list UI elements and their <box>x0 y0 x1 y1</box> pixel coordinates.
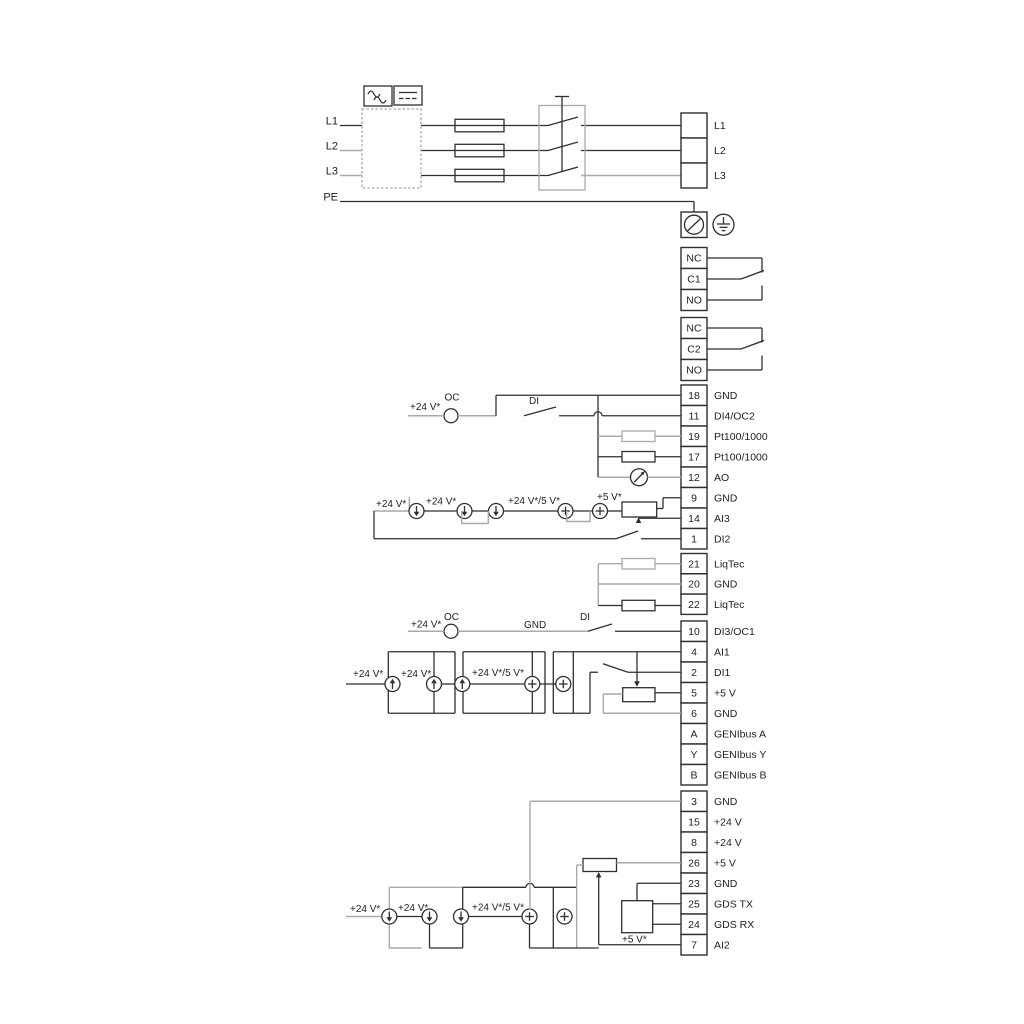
relay2-contact <box>707 328 764 370</box>
terminal-number: 5 <box>691 688 697 700</box>
terminal-cell: 17 Pt100/1000 <box>681 447 768 468</box>
terminal-cell: 25 GDS TX <box>681 894 753 915</box>
terminal-label: Pt100/1000 <box>714 452 768 464</box>
voltage-source-icon <box>556 677 571 692</box>
terminal-cell: 5 +5 V <box>681 683 736 704</box>
liqtec-resistor <box>622 600 655 611</box>
ai1-sensor-circuit: +24 V* +24 V* +24 V*/5 V* <box>346 652 681 714</box>
source-label: +24 V*/5 V* <box>508 496 560 507</box>
oc-label: OC <box>445 393 460 404</box>
terminal-label: DI4/OC2 <box>714 411 755 423</box>
terminal-label: GND <box>714 493 738 505</box>
terminal-number: 1 <box>691 534 697 546</box>
terminal-block-a: 18 GND 11 DI4/OC2 19 Pt100/1000 17 Pt100… <box>681 385 768 549</box>
ac-symbol <box>364 86 392 106</box>
terminal-number: 20 <box>688 579 700 591</box>
terminal-cell: 9 GND <box>681 488 738 509</box>
terminal-number: 12 <box>688 472 700 484</box>
terminal-label: +5 V <box>714 858 736 870</box>
terminal-number: 21 <box>688 558 700 570</box>
terminal-label: DI1 <box>714 667 731 679</box>
source-label: +24 V* <box>350 904 380 915</box>
terminal-cell: A GENIbus A <box>681 724 766 745</box>
terminal-label: GDS RX <box>714 919 754 931</box>
current-source-icon <box>455 677 470 692</box>
terminal-number: 9 <box>691 493 697 505</box>
terminal-cell: 22 LiqTec <box>681 594 744 614</box>
current-source-icon <box>489 504 504 519</box>
terminal-cell: 12 AO <box>681 467 729 488</box>
earth-icon <box>713 214 734 235</box>
terminal-label: GND <box>714 390 738 402</box>
terminal-number: 19 <box>688 431 700 443</box>
source-label: +24 V* <box>401 669 431 680</box>
terminal-number: A <box>690 729 697 741</box>
digital-input-circuit-b: +24 V* OC GND DI <box>408 612 681 638</box>
terminal-label: +24 V <box>714 817 742 829</box>
terminal-number: 7 <box>691 940 697 952</box>
oc-label: OC <box>444 612 459 623</box>
terminal-label: AI1 <box>714 647 730 659</box>
terminal-label: GND <box>714 708 738 720</box>
current-source-icon <box>409 504 424 519</box>
terminal-label: LiqTec <box>714 599 744 611</box>
terminal-cell: 4 AI1 <box>681 642 730 663</box>
mains-l1-label: L1 <box>326 116 338 128</box>
terminal-block-c: 3 GND 15 +24 V 8 +24 V 26 +5 V 23 GND 25… <box>681 791 754 955</box>
output-l1-label: L1 <box>714 120 726 132</box>
wiring-diagram: L1 L2 L3 PE <box>0 0 1024 1024</box>
pt100-resistor <box>622 452 655 463</box>
liqtec-resistor <box>622 559 655 570</box>
potentiometer <box>577 859 681 945</box>
terminal-number: 14 <box>688 513 700 525</box>
terminal-cell: 1 DI2 <box>681 529 731 550</box>
gds-sensor-box: +5 V* <box>622 883 681 945</box>
source-label: +24 V* <box>426 497 456 508</box>
terminal-cell: 20 GND <box>681 574 738 594</box>
voltage-source-icon <box>593 504 608 519</box>
potentiometer <box>622 498 681 523</box>
mains-output-terminal-block: L1 L2 L3 <box>681 113 726 188</box>
source-label: +24 V* <box>376 499 406 510</box>
terminal-label: +24 V <box>714 837 742 849</box>
terminal-cell: 6 GND <box>681 703 738 724</box>
pe-wire <box>340 202 694 213</box>
digital-input-circuit-a: +24 V* OC DI <box>408 393 681 478</box>
voltage-source-icon <box>557 909 572 924</box>
terminal-number: 15 <box>688 817 700 829</box>
terminal-cell: 18 GND <box>681 385 738 406</box>
terminal-cell: 26 +5 V <box>681 853 736 874</box>
di-label: DI <box>580 612 590 623</box>
oc-circle <box>444 624 458 638</box>
terminal-label: AO <box>714 472 729 484</box>
current-source-icon <box>422 909 437 924</box>
terminal-number: 17 <box>688 452 700 464</box>
voltage-source-icon <box>558 504 573 519</box>
terminal-number: Y <box>690 749 697 761</box>
terminal-cell: 7 AI2 <box>681 935 730 956</box>
current-source-icon <box>454 909 469 924</box>
terminal-label: GND <box>714 796 738 808</box>
mains-pe-label: PE <box>323 192 338 204</box>
source-label: +24 V*/5 V* <box>472 903 524 914</box>
terminal-cell: 21 LiqTec <box>681 554 744 574</box>
terminal-label: GND <box>714 878 738 890</box>
oc-circle <box>444 409 458 423</box>
potentiometer <box>603 652 681 702</box>
terminal-cell: 24 GDS RX <box>681 914 754 935</box>
terminal-number: 24 <box>688 919 700 931</box>
terminal-label: AI2 <box>714 940 730 952</box>
current-source-icon <box>382 909 397 924</box>
source-label: +24 V*/5 V* <box>472 668 524 679</box>
terminal-label: GENIbus Y <box>714 749 766 761</box>
relay1-contact <box>707 258 764 300</box>
relay1-nc-label: NC <box>686 253 702 265</box>
mains-wires <box>340 126 681 176</box>
terminal-number: 18 <box>688 390 700 402</box>
terminal-number: 26 <box>688 858 700 870</box>
relay-2-block: NC C2 NO <box>681 318 764 381</box>
terminal-cell: B GENIbus B <box>681 765 767 786</box>
terminal-label: GENIbus B <box>714 770 767 782</box>
terminal-number: B <box>690 770 697 782</box>
terminal-cell: 19 Pt100/1000 <box>681 426 768 447</box>
source-label: +5 V* <box>597 492 622 503</box>
ao-meter-icon <box>631 469 648 486</box>
dc-symbol <box>394 86 422 105</box>
relay2-c2-label: C2 <box>687 344 701 356</box>
terminal-number: 4 <box>691 647 697 659</box>
terminal-number: 23 <box>688 878 700 890</box>
current-source-icon <box>385 677 400 692</box>
terminal-number: 10 <box>688 626 700 638</box>
mains-l2-label: L2 <box>326 141 338 153</box>
terminal-label: Pt100/1000 <box>714 431 768 443</box>
terminal-cell: 2 DI1 <box>681 662 731 683</box>
pt100-sensor-circuit <box>598 431 681 462</box>
ai2-sensor-circuit: +24 V* +24 V* +24 V*/5 V* <box>346 801 681 948</box>
supply-label: +24 V* <box>411 620 441 631</box>
terminal-label: DI2 <box>714 534 731 546</box>
terminal-cell: 10 DI3/OC1 <box>681 621 755 642</box>
terminal-label: LiqTec <box>714 558 744 570</box>
terminal-number: 11 <box>689 411 700 423</box>
ai3-sensor-circuit: +24 V* +24 V* +24 V*/5 V* +5 V* <box>374 492 681 539</box>
pe-terminal-icon <box>681 212 707 238</box>
terminal-label: GDS TX <box>714 899 753 911</box>
terminal-number: 25 <box>688 899 700 911</box>
output-l2-label: L2 <box>714 145 726 157</box>
gds-supply-label: +5 V* <box>622 935 647 946</box>
voltage-source-icon <box>522 909 537 924</box>
relay2-no-label: NO <box>686 365 702 377</box>
liqtec-terminal-block: 21 LiqTec 20 GND 22 LiqTec <box>598 554 744 615</box>
relay2-nc-label: NC <box>686 323 702 335</box>
rfi-filter-box <box>362 109 421 188</box>
relay-1-block: NC C1 NO <box>681 248 764 311</box>
terminal-label: GENIbus A <box>714 729 766 741</box>
terminal-number: 2 <box>691 667 697 679</box>
pt100-resistor <box>622 431 655 442</box>
analog-output-circuit <box>598 469 681 486</box>
terminal-number: 22 <box>688 599 700 611</box>
terminal-cell: 8 +24 V <box>681 832 742 853</box>
mains-l3-label: L3 <box>326 166 338 178</box>
terminal-cell: 23 GND <box>681 873 738 894</box>
terminal-label: GND <box>714 579 738 591</box>
terminal-number: 6 <box>691 708 697 720</box>
wiring-diagram-page: L1 L2 L3 PE <box>0 0 1024 1024</box>
terminal-number: 8 <box>691 837 697 849</box>
terminal-block-b: 10 DI3/OC1 4 AI1 2 DI1 5 +5 V 6 GND A GE… <box>681 621 767 785</box>
terminal-label: DI3/OC1 <box>714 626 755 638</box>
voltage-source-icon <box>525 677 540 692</box>
di-label: DI <box>529 396 539 407</box>
output-l3-label: L3 <box>714 170 726 182</box>
current-source-icon <box>457 504 472 519</box>
relay1-c1-label: C1 <box>687 274 701 286</box>
terminal-label: +5 V <box>714 688 736 700</box>
mains-input-section: L1 L2 L3 PE <box>323 86 694 212</box>
terminal-cell: 14 AI3 <box>681 508 730 529</box>
di-switch <box>588 624 681 631</box>
terminal-cell: 15 +24 V <box>681 812 742 833</box>
source-label: +24 V* <box>353 669 383 680</box>
gnd-label: GND <box>524 620 546 631</box>
terminal-cell: 3 GND <box>681 791 738 812</box>
current-source-icon <box>427 677 442 692</box>
liqtec-sensor-circuit <box>598 559 681 611</box>
terminal-cell: Y GENIbus Y <box>681 744 766 765</box>
relay1-no-label: NO <box>686 295 702 307</box>
terminal-label: AI3 <box>714 513 730 525</box>
terminal-cell: 11 DI4/OC2 <box>681 406 755 427</box>
supply-label: +24 V* <box>410 402 440 413</box>
terminal-number: 3 <box>691 796 697 808</box>
di-switch <box>524 407 681 416</box>
